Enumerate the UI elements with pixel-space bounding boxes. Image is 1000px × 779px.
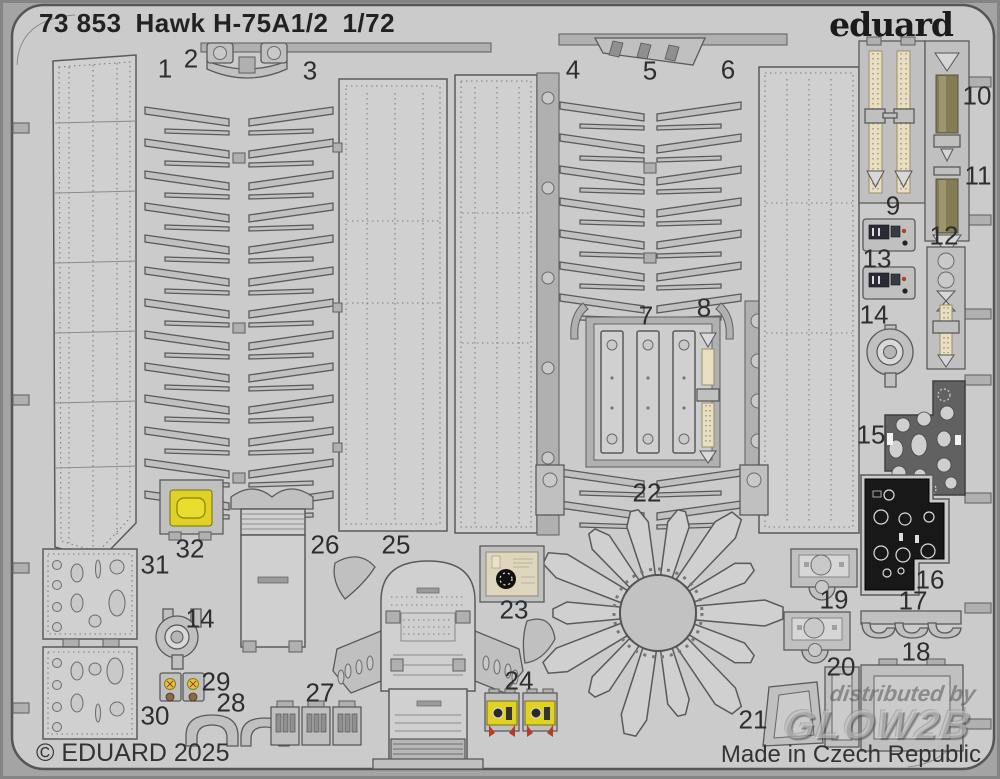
- part-number-label-5: 5: [643, 56, 657, 87]
- part-number-label-27: 27: [306, 678, 335, 709]
- part-number-label-23: 23: [500, 595, 529, 626]
- part-number-label-12: 12: [930, 221, 959, 252]
- catalog-number: 73 853: [39, 8, 122, 39]
- part-number-label-15: 15: [857, 420, 886, 451]
- part-number-label-29: 29: [202, 667, 231, 698]
- part-number-label-14b: 14: [186, 604, 215, 635]
- made-in-text: Made in Czech Republic: [721, 741, 981, 769]
- part-number-label-11: 11: [965, 161, 992, 192]
- part-number-label-31: 31: [141, 550, 170, 581]
- part-number-label-21: 21: [739, 705, 768, 736]
- part-number-label-7: 7: [639, 301, 653, 332]
- product-photo: 73 853 Hawk H-75A1/2 1/72 eduard 1 2 3 4…: [0, 0, 1000, 779]
- part-number-label-3: 3: [303, 56, 317, 87]
- part-number-label-20: 20: [827, 652, 856, 683]
- watermark-line1: distributed by: [787, 681, 978, 707]
- eduard-logo: eduard: [829, 5, 953, 44]
- part-number-label-2: 2: [184, 44, 198, 75]
- part-number-label-14: 14: [860, 300, 889, 331]
- part-number-label-25: 25: [382, 530, 411, 561]
- part-number-label-8: 8: [697, 293, 711, 324]
- part-number-label-32: 32: [176, 534, 205, 565]
- part-number-label-22: 22: [633, 478, 662, 509]
- part-number-label-13: 13: [863, 244, 892, 275]
- part-number-label-6: 6: [721, 55, 735, 86]
- part-number-label-4: 4: [566, 55, 580, 86]
- part-number-label-18: 18: [902, 637, 931, 668]
- product-scale: 1/72: [342, 8, 395, 39]
- distributor-watermark: distributed by GLOW2B: [781, 681, 978, 748]
- part-number-label-19: 19: [820, 585, 849, 616]
- part-number-label-30: 30: [141, 701, 170, 732]
- part-number-label-1: 1: [158, 54, 172, 85]
- part-number-label-26: 26: [311, 530, 340, 561]
- part-number-label-10: 10: [963, 81, 992, 112]
- part-number-label-9: 9: [886, 191, 900, 222]
- part-number-label-17: 17: [899, 586, 928, 617]
- text-overlay: 73 853 Hawk H-75A1/2 1/72 eduard 1 2 3 4…: [3, 3, 997, 776]
- copyright-text: © EDUARD 2025: [36, 739, 230, 768]
- part-number-label-24: 24: [505, 666, 534, 697]
- product-name: Hawk H-75A1/2: [136, 8, 329, 39]
- page-title: 73 853 Hawk H-75A1/2 1/72: [39, 8, 395, 39]
